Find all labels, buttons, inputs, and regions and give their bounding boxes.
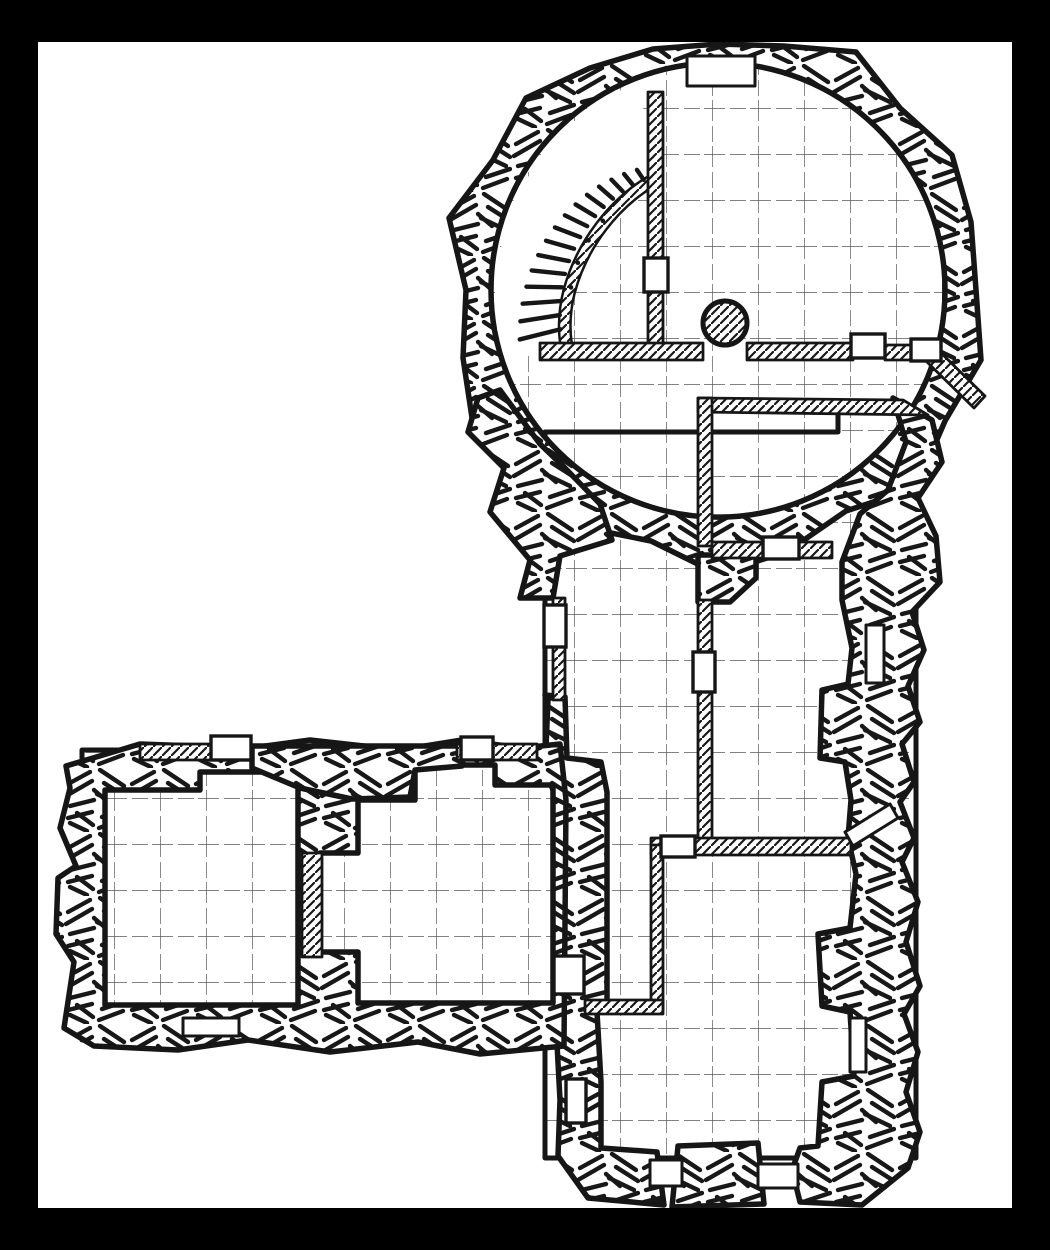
door-cross-wall-west xyxy=(851,334,885,358)
stair-tread-dot xyxy=(569,285,574,290)
thin-wall-gap-east-lower xyxy=(850,1018,866,1072)
stair-tread xyxy=(526,287,562,288)
dungeon-map-page xyxy=(0,0,1050,1250)
door-south-cross xyxy=(661,836,695,857)
door-cross-wall-east xyxy=(911,339,941,361)
wing-top-wall-west xyxy=(140,744,216,760)
trapezoid-room-west-wall xyxy=(698,398,712,546)
chamber-cross-wall-west xyxy=(540,343,703,360)
door-chamber-partition xyxy=(644,258,668,292)
hall-partition-wall xyxy=(698,600,712,845)
wing-divider-wall xyxy=(302,853,322,957)
door-trapezoid-room xyxy=(763,537,799,559)
stair-tread-dot xyxy=(576,260,581,265)
chamber-partition-wall xyxy=(648,92,663,345)
closet-south-wall xyxy=(585,1000,663,1014)
thin-wall-gap-south-east xyxy=(758,1164,798,1188)
door-closet-west xyxy=(554,956,584,994)
thin-wall-gap-wing xyxy=(183,1018,239,1036)
thin-wall-gap-south-west xyxy=(650,1160,682,1186)
door-wing-room-a xyxy=(211,736,251,760)
stair-tread-dot xyxy=(600,218,605,223)
door-wing-room-b xyxy=(461,737,493,760)
thin-wall-gap-top xyxy=(687,56,755,86)
chamber-cross-wall-east xyxy=(885,345,913,360)
stair-tread xyxy=(523,301,561,304)
trapezoid-room-top-wall xyxy=(698,398,928,415)
door-hall-west xyxy=(566,1079,586,1123)
closet-east-wall xyxy=(651,845,663,1010)
south-wall-chunk xyxy=(672,1143,764,1207)
stair-tread-dot xyxy=(586,238,591,243)
door-corridor-west xyxy=(544,605,566,647)
thin-wall-gap-east-upper xyxy=(866,625,884,683)
chamber-cross-wall-mid xyxy=(747,343,853,360)
dungeon-map xyxy=(0,0,1050,1250)
door-hall-partition xyxy=(693,652,715,692)
stone-pillar xyxy=(703,301,747,345)
